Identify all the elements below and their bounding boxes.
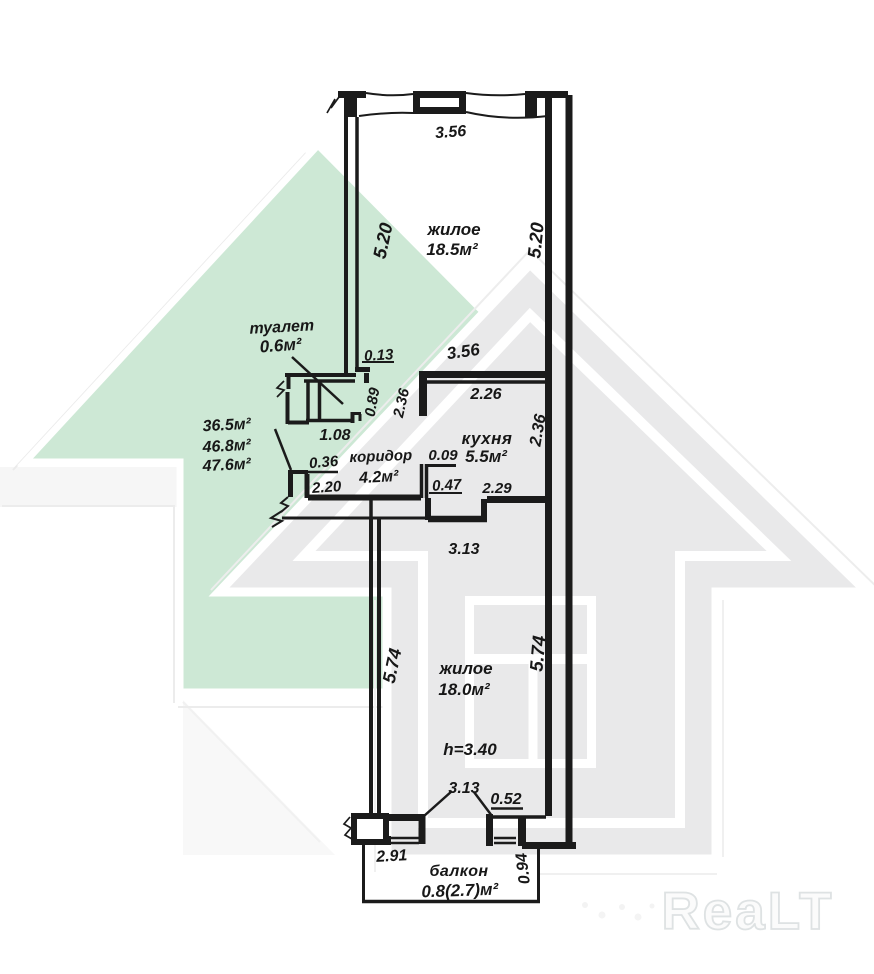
svg-text:5.5м²: 5.5м² (465, 447, 508, 466)
svg-text:2.29: 2.29 (481, 480, 512, 497)
svg-text:47.6м²: 47.6м² (201, 456, 252, 476)
svg-text:кухня: кухня (462, 429, 513, 448)
svg-text:2.91: 2.91 (375, 847, 408, 866)
svg-text:балкон: балкон (430, 863, 489, 880)
svg-text:3.56: 3.56 (435, 123, 467, 142)
svg-text:0.36: 0.36 (308, 453, 339, 473)
svg-text:h=3.40: h=3.40 (443, 740, 497, 759)
svg-text:46.8м²: 46.8м² (201, 437, 252, 457)
svg-text:2.20: 2.20 (311, 478, 343, 497)
svg-text:4.2м²: 4.2м² (358, 468, 400, 487)
svg-text:2.26: 2.26 (469, 386, 501, 403)
svg-text:0.52: 0.52 (490, 791, 521, 808)
svg-text:0.09: 0.09 (428, 447, 458, 464)
svg-text:3.13: 3.13 (448, 780, 479, 797)
svg-text:туалет: туалет (249, 317, 314, 337)
svg-text:36.5м²: 36.5м² (202, 416, 252, 436)
svg-text:0.13: 0.13 (364, 346, 395, 365)
svg-text:ReaLT: ReaLT (661, 882, 834, 941)
svg-text:0.47: 0.47 (432, 476, 463, 495)
svg-text:1.08: 1.08 (319, 427, 350, 444)
svg-text:5.20: 5.20 (523, 221, 548, 260)
svg-text:коридор: коридор (349, 447, 412, 466)
svg-text:5.74: 5.74 (525, 635, 549, 673)
svg-text:18.5м²: 18.5м² (426, 240, 479, 259)
svg-text:жилое: жилое (426, 220, 480, 239)
svg-text:жилое: жилое (438, 659, 492, 678)
svg-text:3.13: 3.13 (448, 541, 479, 558)
svg-text:0.8(2.7)м²: 0.8(2.7)м² (421, 880, 500, 902)
svg-text:0.6м²: 0.6м² (259, 334, 303, 356)
svg-text:18.0м²: 18.0м² (438, 680, 491, 699)
